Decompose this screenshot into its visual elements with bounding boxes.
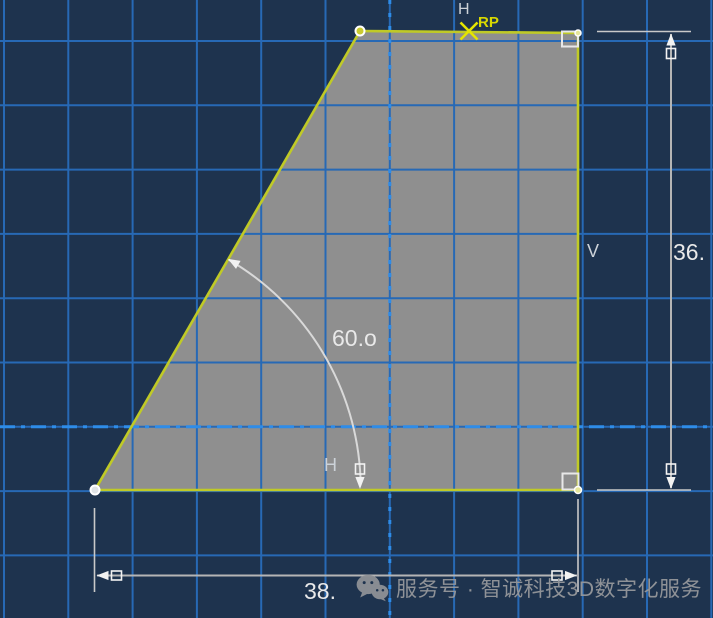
constraint-label-h-top: H xyxy=(458,2,470,18)
vertex-marker-top-left xyxy=(356,27,365,36)
wechat-icon xyxy=(356,574,389,602)
sketch-viewport[interactable]: H RP V H 60.o 36. 38. 服务号 · 智诚科技3D数字化服务 xyxy=(0,0,713,618)
vertex-marker-bottom-left xyxy=(91,486,100,495)
watermark-text: 服务号 · 智诚科技3D数字化服务 xyxy=(396,573,702,603)
angle-dimension-value[interactable]: 60.o xyxy=(332,327,377,350)
constraint-label-h-bottom: H xyxy=(324,456,337,474)
sketch-canvas[interactable] xyxy=(0,0,713,618)
watermark: 服务号 · 智诚科技3D数字化服务 xyxy=(356,573,702,603)
constraint-label-v-right: V xyxy=(587,242,599,260)
height-dimension-value[interactable]: 36. xyxy=(673,241,705,264)
vertex-marker-bottom-right xyxy=(575,487,582,494)
width-dimension-value[interactable]: 38. xyxy=(304,580,336,603)
reference-point-label: RP xyxy=(478,15,499,30)
vertex-marker-top-right xyxy=(575,30,581,36)
